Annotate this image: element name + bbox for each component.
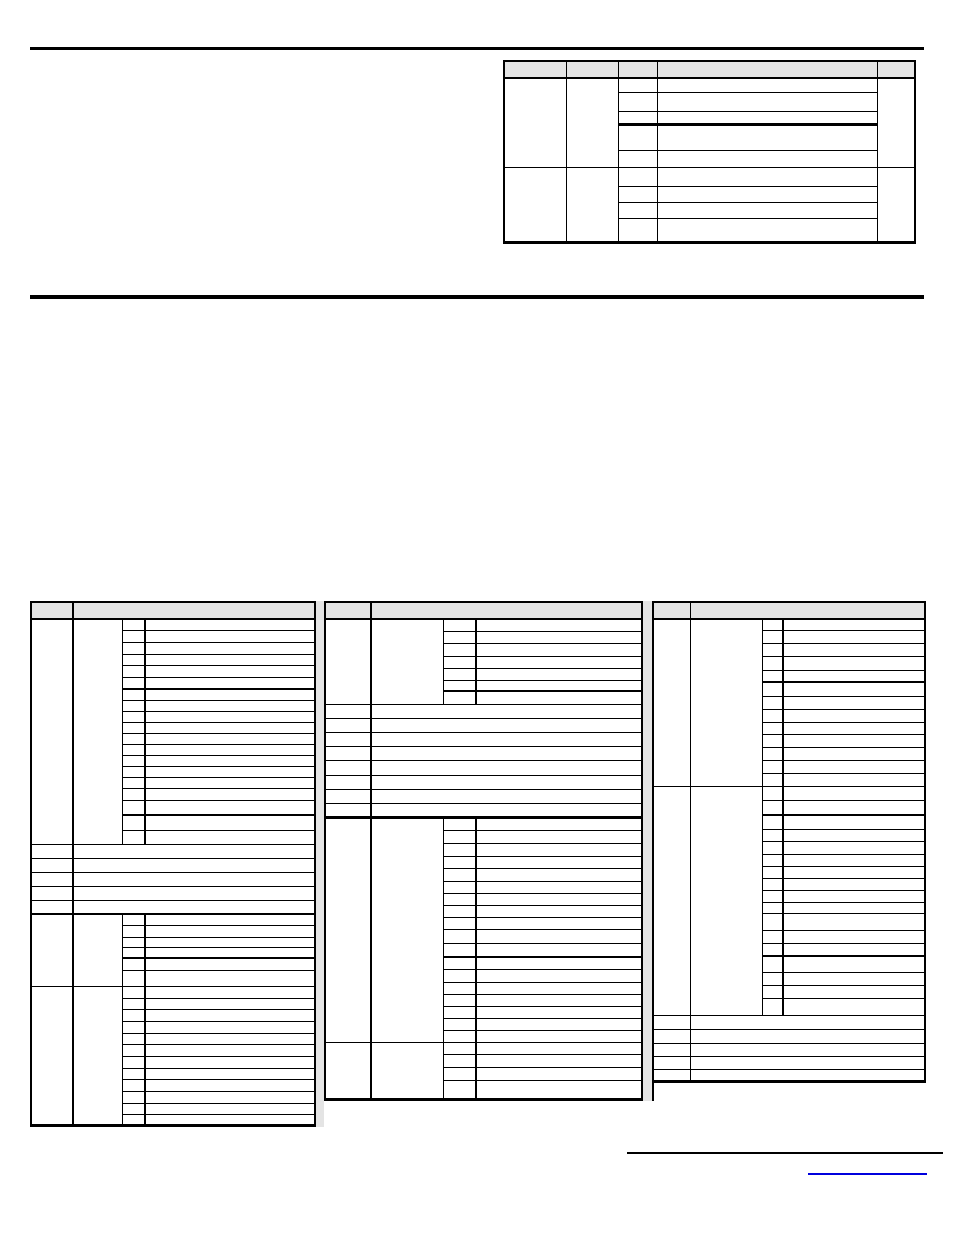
grid-line — [652, 1056, 926, 1057]
grid-line — [652, 618, 926, 620]
grid-line — [762, 943, 924, 944]
grid-line — [762, 656, 924, 657]
grid-line — [762, 890, 924, 891]
footer-link[interactable] — [808, 1173, 927, 1175]
grid-line — [652, 1080, 926, 1083]
grid-line — [762, 747, 924, 748]
document-page — [0, 0, 954, 1235]
grid-line — [762, 985, 924, 986]
grid-line — [652, 1029, 926, 1030]
bottom-table-right-group — [0, 0, 954, 1235]
grid-line — [762, 734, 924, 735]
grid-line — [762, 709, 924, 710]
footer-rule — [627, 1152, 943, 1154]
grid-line — [762, 902, 924, 903]
grid-line — [652, 786, 926, 787]
grid-line — [762, 681, 924, 683]
grid-line — [762, 800, 924, 801]
grid-line — [762, 878, 924, 879]
grid-line — [762, 913, 924, 914]
grid-line — [762, 930, 924, 931]
grid-line — [762, 866, 924, 867]
grid-line — [924, 601, 926, 1083]
grid-line — [652, 1069, 926, 1070]
grid-line — [762, 630, 924, 631]
grid-line — [762, 643, 924, 644]
grid-line — [762, 760, 924, 761]
grid-line — [652, 601, 654, 1101]
grid-line — [762, 722, 924, 723]
grid-line — [762, 955, 924, 957]
grid-line — [762, 696, 924, 697]
grid-line — [762, 841, 924, 842]
grid-line — [762, 670, 924, 671]
grid-line — [762, 998, 924, 999]
grid-line — [762, 814, 924, 816]
grid-line — [652, 1015, 926, 1016]
grid-line — [762, 829, 924, 830]
grid-line — [762, 773, 924, 774]
grid-line — [690, 601, 691, 1080]
grid-line — [652, 601, 926, 603]
grid-line — [762, 854, 924, 855]
table-header-fill — [652, 601, 926, 618]
grid-line — [652, 1043, 926, 1044]
grid-line — [762, 972, 924, 973]
